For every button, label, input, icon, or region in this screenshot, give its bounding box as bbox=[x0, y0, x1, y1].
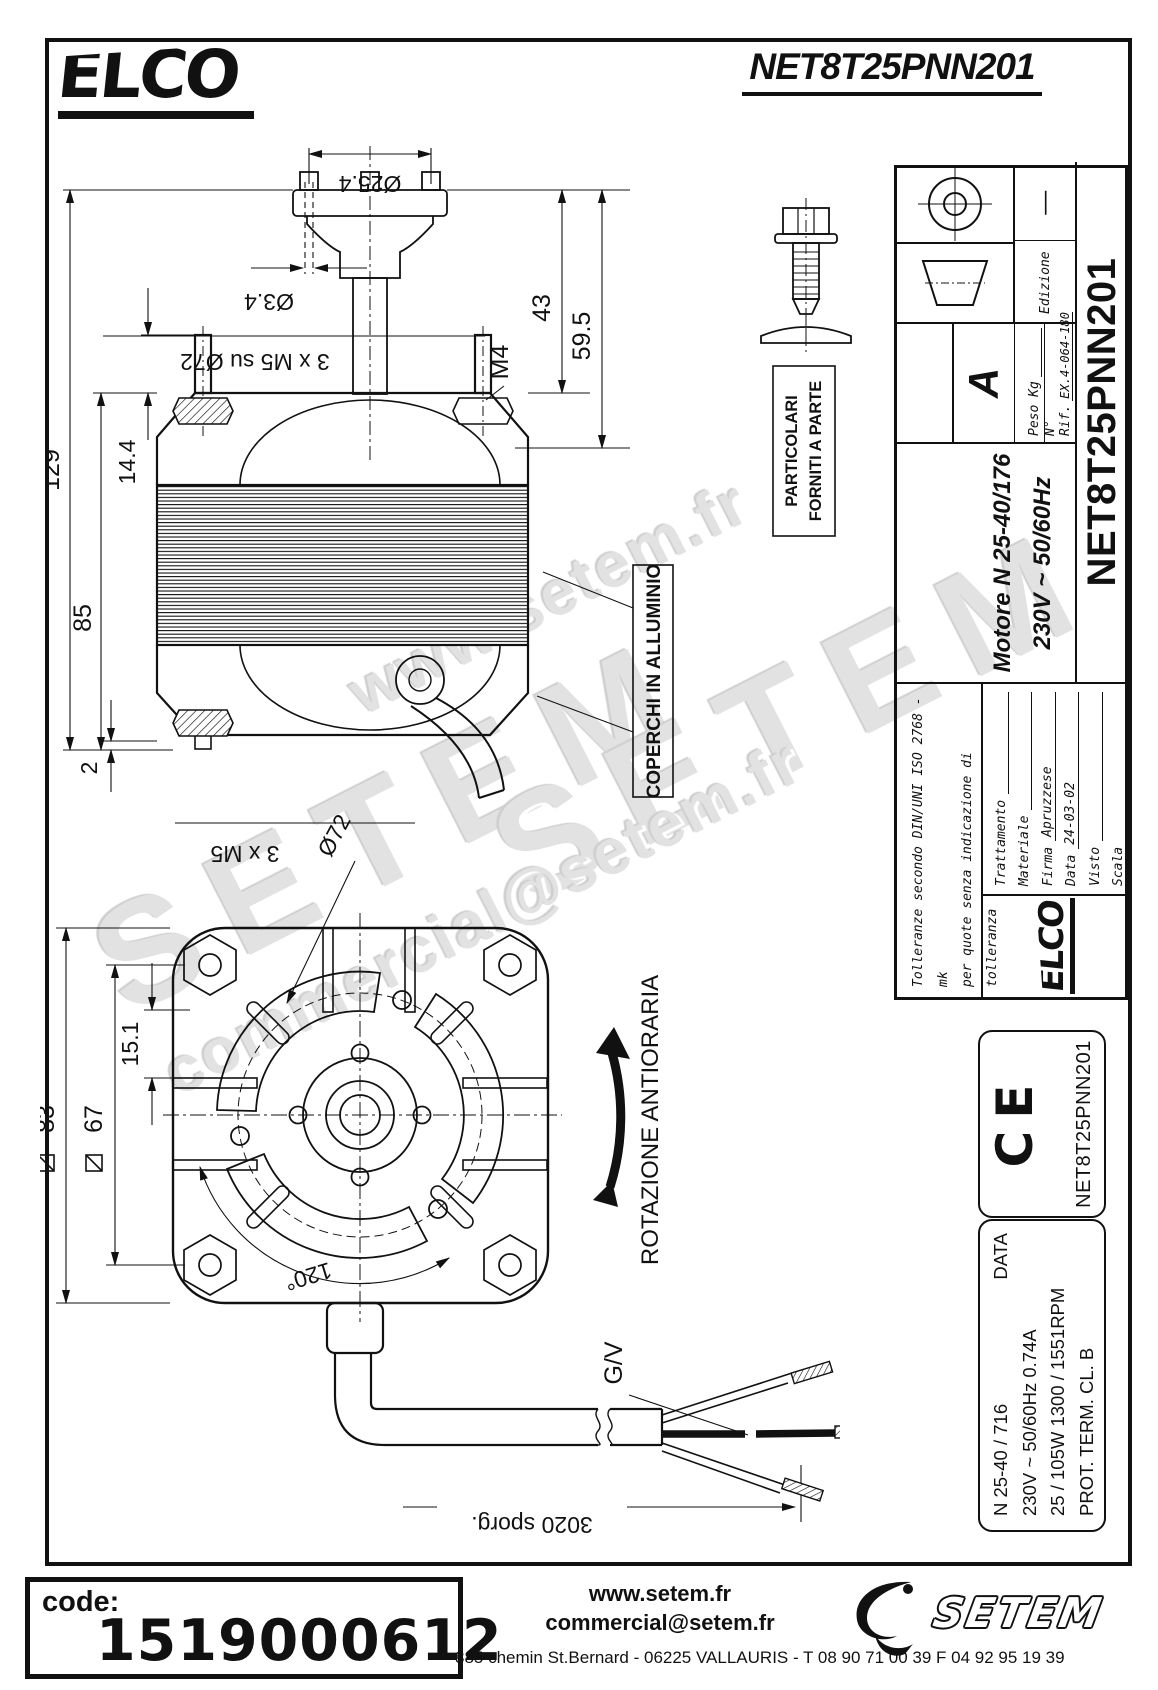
product-line1: Motore N 25-40/176 bbox=[989, 454, 1017, 673]
field-material: Materiale bbox=[1009, 692, 1033, 886]
edition-cell: Edizione — bbox=[1015, 165, 1075, 322]
reference-value: EX.4-064-180 bbox=[1058, 312, 1073, 401]
ce-mark: CE bbox=[986, 1073, 1044, 1176]
weight-label: Peso Kg bbox=[1027, 381, 1042, 436]
data-protection: PROT. TERM. CL. B bbox=[1073, 1233, 1102, 1516]
product-description: Motore N 25-40/176 230V ~ 50/60Hz bbox=[897, 442, 1075, 682]
scale-label: Scala bbox=[1111, 847, 1126, 886]
approved-label: Visto bbox=[1088, 847, 1103, 886]
title-block: Tolleranze secondo DIN/UNI ISO 2768 - mk… bbox=[894, 165, 1128, 1000]
elco-logo-underline bbox=[58, 111, 254, 119]
code-box: code: 1519000612 bbox=[25, 1577, 463, 1679]
elco-logo: ELCO bbox=[58, 44, 254, 119]
dim-cable-length: 3020 sporg. bbox=[471, 1512, 592, 1538]
treatment-label: Trattamento bbox=[994, 800, 1009, 886]
dim-angle-120: 120° bbox=[282, 1257, 335, 1296]
field-reference: N° Rif.EX.4-064-180 bbox=[1045, 324, 1075, 442]
motor-front-view-drawing: 83 67 15.1 Ø72 120° ROTAZIONE ANTIORARIA… bbox=[40, 795, 840, 1540]
tolerance-note-line1: Tolleranze secondo DIN/UNI ISO 2768 - mk bbox=[907, 690, 956, 987]
dim-square-83: 83 bbox=[40, 1105, 60, 1171]
dim-15-1: 15.1 bbox=[117, 1022, 143, 1067]
dim-hub-diameter: Ø25.4 bbox=[338, 171, 401, 197]
ce-marking-box: CE NET8T25PNN201 bbox=[978, 1030, 1106, 1218]
data-model: N 25-40 / 716 bbox=[987, 1404, 1016, 1516]
dim-studs-top: 3 x M5 su Ø72 bbox=[180, 349, 330, 375]
wire-label-gv: G/V bbox=[600, 1341, 628, 1384]
covers-note: COPERCHI IN ALLUMINIO bbox=[644, 564, 665, 799]
title-block-fields: Trattamento Materiale FirmaApruzzese Dat… bbox=[983, 682, 1128, 894]
setem-logo-text: SETEM bbox=[930, 1589, 1108, 1637]
signature-value: Apruzzese bbox=[1040, 692, 1056, 841]
weight-value bbox=[1041, 328, 1042, 377]
setem-swoosh-icon bbox=[845, 1576, 933, 1656]
title-block-elco-logo: ELCO bbox=[983, 894, 1128, 997]
datasheet-page: www.setem.fr SETEM SETEM commercial@sete… bbox=[0, 0, 1158, 1690]
ce-box-drawing-number: NET8T25PNN201 bbox=[1073, 1040, 1096, 1208]
motor-body-outline bbox=[157, 326, 528, 798]
field-date: Data24-03-02 bbox=[1056, 692, 1080, 886]
parts-note-line2: FORNITI A PARTE bbox=[807, 381, 825, 522]
title-block-elco-text: ELCO bbox=[1036, 899, 1068, 993]
circle-symbol-icon bbox=[897, 165, 1013, 243]
code-value: 1519000612 bbox=[96, 1608, 503, 1674]
cable-and-wires bbox=[327, 1303, 840, 1501]
square-symbol-icon bbox=[40, 1155, 54, 1171]
dim-thread-m4: M4 bbox=[486, 345, 514, 380]
field-weight: Peso Kg bbox=[1015, 324, 1045, 442]
rotation-arrow bbox=[593, 1027, 630, 1207]
date-value: 24-03-02 bbox=[1063, 692, 1079, 849]
motor-side-view-drawing: 129 85 14.4 2 Ø25.4 Ø3.4 3 x M5 su Ø72 4… bbox=[45, 140, 895, 885]
revision-blank-cell bbox=[897, 324, 954, 442]
flange-outline bbox=[163, 913, 562, 1322]
front-dimensions bbox=[56, 861, 801, 1522]
tolerance-note: Tolleranze secondo DIN/UNI ISO 2768 - mk… bbox=[897, 682, 983, 997]
dim-67-value: 67 bbox=[80, 1105, 108, 1133]
dim-83-value: 83 bbox=[40, 1105, 60, 1133]
drawing-title: NET8T25PNN201 bbox=[742, 46, 1042, 96]
footer-email: commercial@setem.fr bbox=[490, 1610, 830, 1636]
rotation-note: ROTAZIONE ANTIORARIA bbox=[637, 975, 664, 1265]
footer-address: 885 chemin St.Bernard - 06225 VALLAURIS … bbox=[455, 1648, 1055, 1668]
dim-129: 129 bbox=[45, 449, 65, 491]
material-value bbox=[1031, 692, 1032, 810]
dim-hole-diameter: Ø3.4 bbox=[244, 289, 294, 315]
signature-label: Firma bbox=[1041, 847, 1056, 886]
dim-14-4: 14.4 bbox=[114, 439, 140, 484]
revision-letter: A bbox=[954, 324, 1015, 442]
dim-2: 2 bbox=[76, 762, 102, 775]
cone-symbol-icon bbox=[897, 243, 1013, 323]
dim-43: 43 bbox=[528, 294, 556, 322]
date-label: Data bbox=[1064, 855, 1079, 886]
scale-value bbox=[1125, 692, 1126, 841]
data-plate-box: N 25-40 / 716 DATA 230V ~ 50/60Hz 0.74A … bbox=[978, 1219, 1106, 1532]
data-electrical: 230V ~ 50/60Hz 0.74A bbox=[1016, 1233, 1045, 1516]
title-block-elco-underline bbox=[1070, 899, 1075, 995]
projection-symbols bbox=[897, 165, 1015, 322]
dim-85: 85 bbox=[69, 604, 97, 632]
material-label: Materiale bbox=[1017, 816, 1032, 886]
data-header: DATA bbox=[987, 1233, 1016, 1280]
treatment-value bbox=[1008, 692, 1009, 794]
edition-label: Edizione bbox=[1038, 251, 1053, 322]
footer-website: www.setem.fr bbox=[490, 1581, 830, 1607]
field-scale: Scala bbox=[1103, 692, 1127, 886]
data-power-speed: 25 / 105W 1300 / 1551RPM bbox=[1044, 1233, 1073, 1516]
dim-square-67: 67 bbox=[80, 1105, 108, 1171]
screw-detail bbox=[761, 198, 851, 356]
reference-label: N° Rif. bbox=[1043, 405, 1073, 436]
approved-value bbox=[1102, 692, 1103, 841]
field-treatment: Trattamento bbox=[985, 692, 1009, 886]
product-line2: 230V ~ 50/60Hz bbox=[1029, 477, 1057, 650]
elco-logo-text: ELCO bbox=[55, 44, 241, 107]
dim-bolt-circle: Ø72 bbox=[312, 810, 355, 861]
edition-value: — bbox=[1015, 165, 1075, 241]
revision-column: A Peso Kg N° Rif.EX.4-064-180 bbox=[897, 322, 1075, 442]
dim-59-5: 59.5 bbox=[568, 312, 596, 361]
square-symbol-icon bbox=[86, 1155, 102, 1171]
parts-note-line1: PARTICOLARI bbox=[783, 395, 801, 507]
field-signature: FirmaApruzzese bbox=[1032, 692, 1056, 886]
title-block-drawing-number: NET8T25PNN201 bbox=[1075, 162, 1128, 682]
field-approved: Visto bbox=[1079, 692, 1103, 886]
